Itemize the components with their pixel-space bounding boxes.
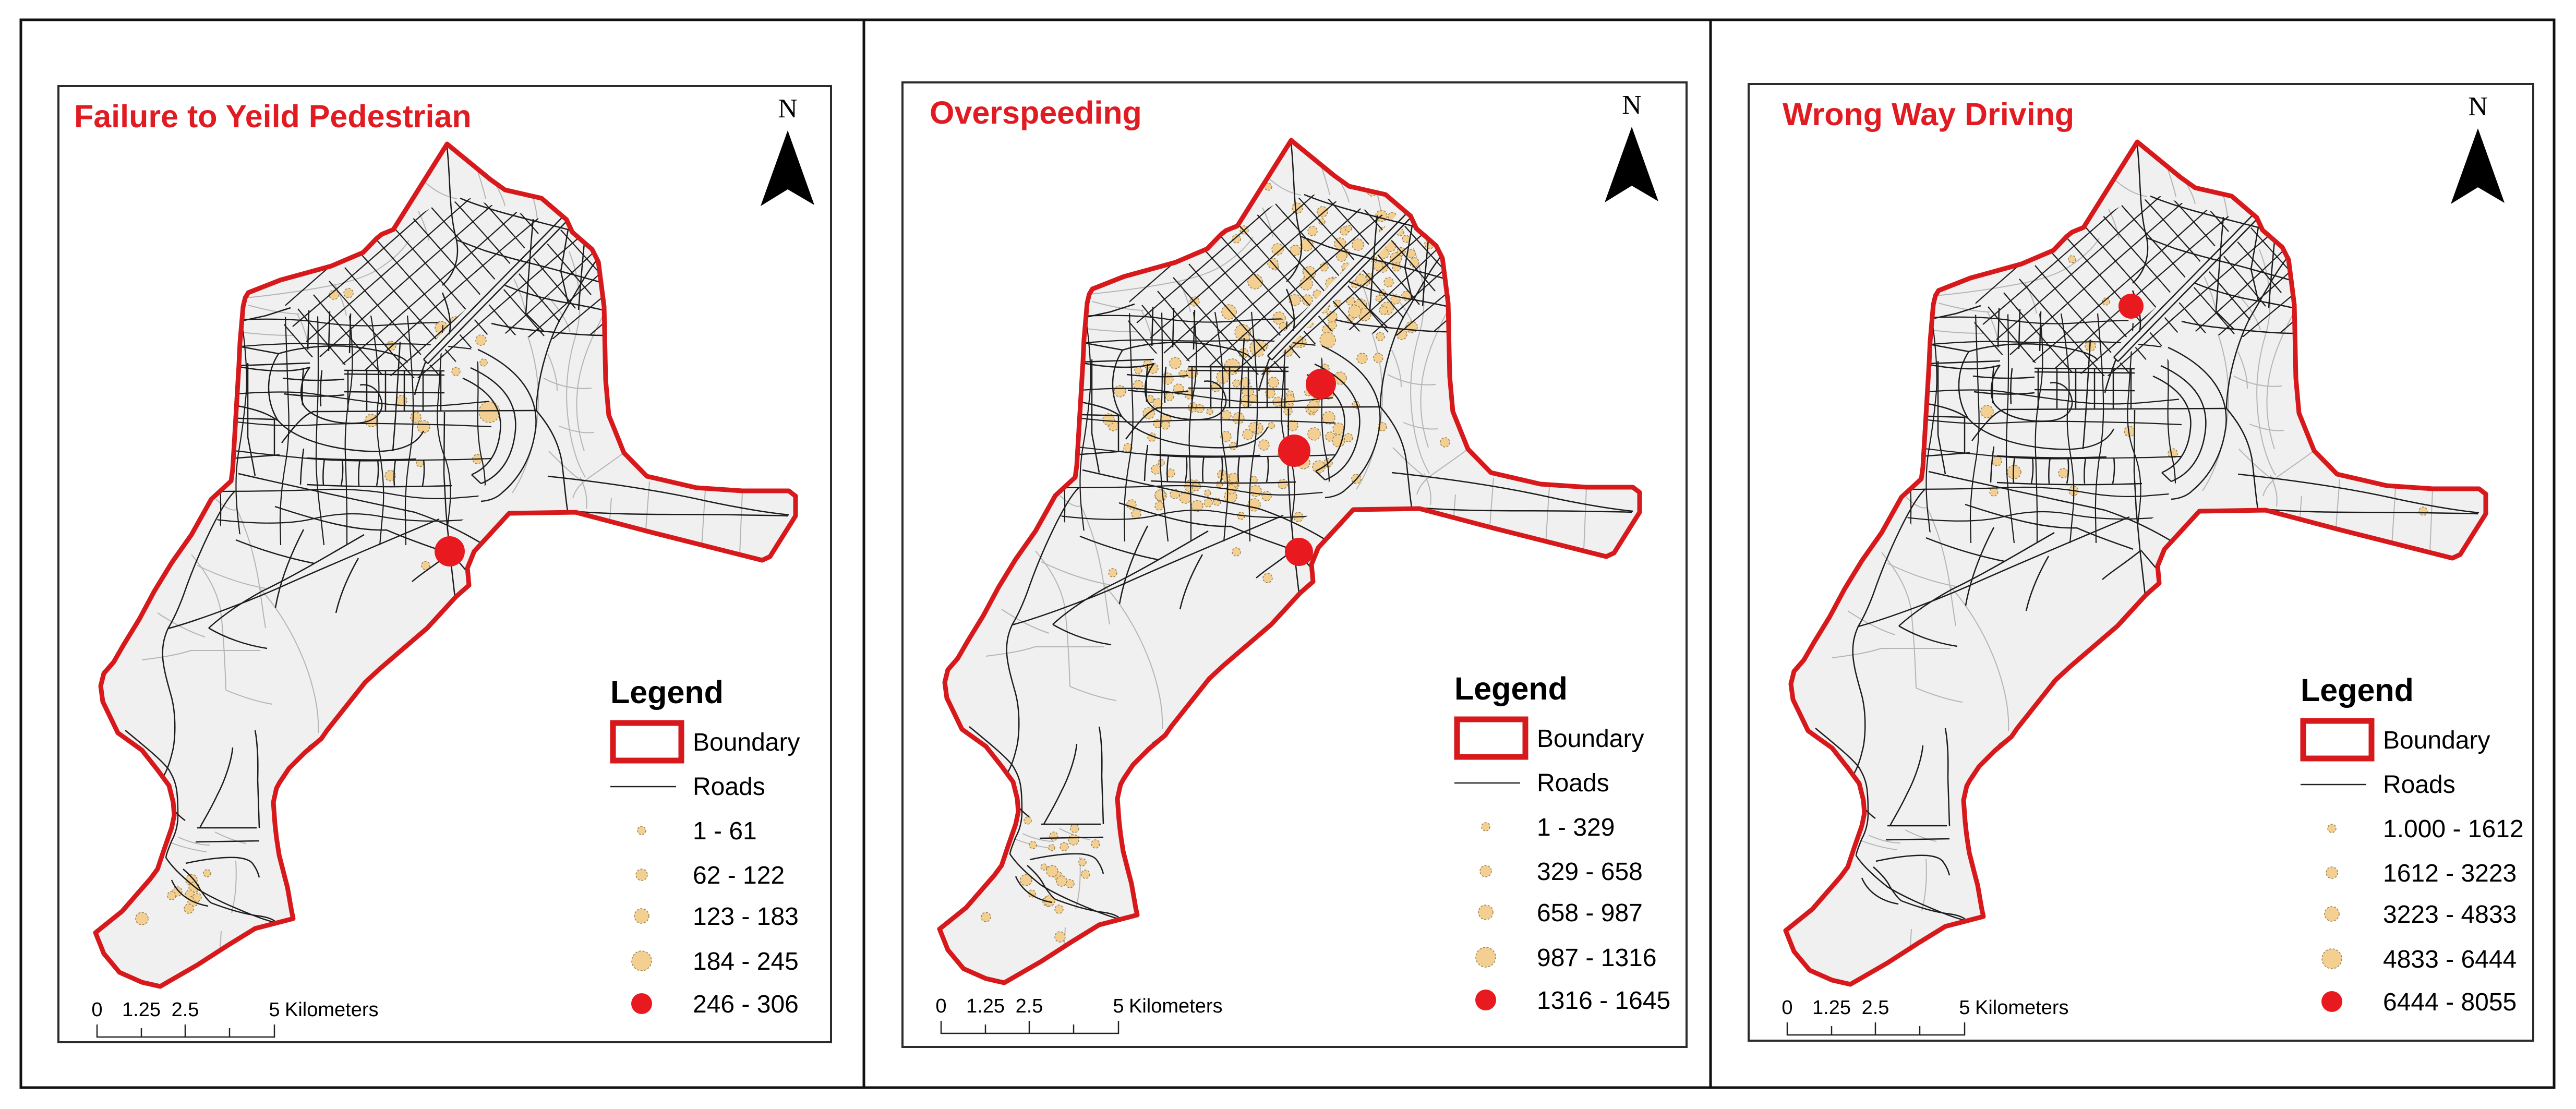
svg-text:Kilometers: Kilometers	[1975, 997, 2069, 1019]
svg-text:1 - 329: 1 - 329	[1537, 814, 1615, 841]
svg-text:62 - 122: 62 - 122	[693, 862, 785, 889]
svg-text:1.25: 1.25	[122, 999, 161, 1021]
svg-text:1.25: 1.25	[966, 995, 1005, 1017]
svg-text:1.25: 1.25	[1812, 997, 1851, 1019]
svg-text:Wrong Way Driving: Wrong Way Driving	[1783, 97, 2074, 132]
svg-text:2.5: 2.5	[1016, 995, 1043, 1017]
svg-text:Boundary: Boundary	[1537, 725, 1644, 753]
svg-text:Roads: Roads	[2383, 771, 2455, 799]
svg-text:N: N	[2468, 92, 2488, 122]
svg-text:Legend: Legend	[2301, 672, 2414, 708]
svg-text:329 - 658: 329 - 658	[1537, 858, 1643, 886]
svg-text:1612 - 3223: 1612 - 3223	[2383, 860, 2517, 887]
svg-text:184 - 245: 184 - 245	[693, 948, 799, 975]
svg-text:Boundary: Boundary	[2383, 727, 2490, 754]
svg-text:1 - 61: 1 - 61	[693, 817, 757, 845]
svg-text:N: N	[1622, 90, 1642, 120]
svg-text:0: 0	[1781, 997, 1792, 1019]
svg-text:0: 0	[935, 995, 946, 1017]
svg-text:Boundary: Boundary	[693, 729, 800, 756]
svg-text:2.5: 2.5	[1862, 997, 1889, 1019]
svg-text:Overspeeding: Overspeeding	[930, 95, 1142, 130]
svg-text:Roads: Roads	[1537, 769, 1609, 797]
svg-text:2.5: 2.5	[172, 999, 199, 1021]
svg-text:N: N	[778, 94, 798, 124]
svg-text:1.000 - 1612: 1.000 - 1612	[2383, 815, 2524, 843]
svg-text:5: 5	[1113, 995, 1124, 1017]
svg-text:1316 - 1645: 1316 - 1645	[1537, 987, 1670, 1015]
svg-text:0: 0	[91, 999, 102, 1021]
svg-text:4833 - 6444: 4833 - 6444	[2383, 946, 2517, 973]
svg-text:3223 - 4833: 3223 - 4833	[2383, 901, 2517, 929]
svg-text:Legend: Legend	[1454, 671, 1568, 706]
svg-text:123 - 183: 123 - 183	[693, 903, 799, 931]
svg-text:246 - 306: 246 - 306	[693, 991, 799, 1018]
svg-text:5: 5	[1959, 997, 1970, 1019]
svg-text:Legend: Legend	[610, 674, 724, 710]
svg-text:Failure to Yeild Pedestrian: Failure to Yeild Pedestrian	[74, 99, 472, 134]
svg-text:658 - 987: 658 - 987	[1537, 899, 1643, 927]
svg-text:Kilometers: Kilometers	[285, 999, 379, 1021]
svg-text:987 - 1316: 987 - 1316	[1537, 944, 1657, 972]
svg-text:Roads: Roads	[693, 773, 765, 801]
svg-text:6444 - 8055: 6444 - 8055	[2383, 989, 2517, 1016]
svg-text:Kilometers: Kilometers	[1129, 995, 1223, 1017]
svg-text:5: 5	[269, 999, 280, 1021]
